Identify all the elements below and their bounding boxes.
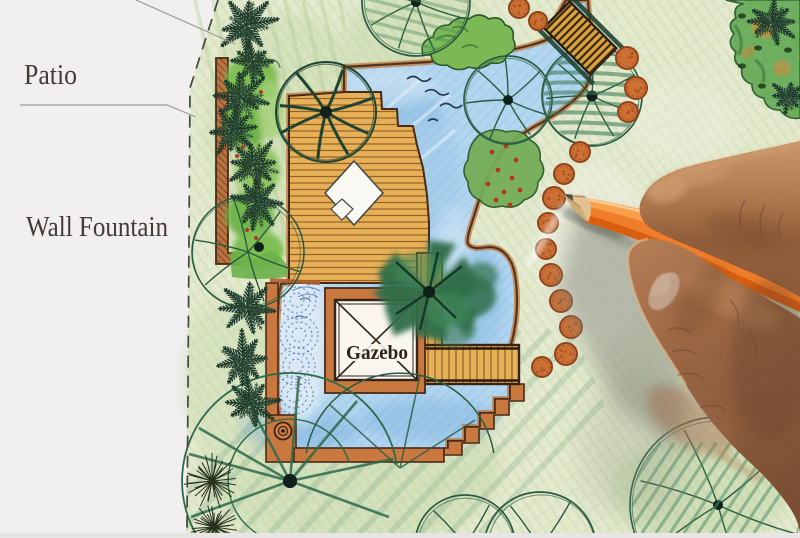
svg-text:Patio: Patio [24, 60, 77, 91]
svg-text:Wall Fountain: Wall Fountain [26, 212, 168, 243]
svg-text:Gazebo: Gazebo [346, 342, 408, 364]
